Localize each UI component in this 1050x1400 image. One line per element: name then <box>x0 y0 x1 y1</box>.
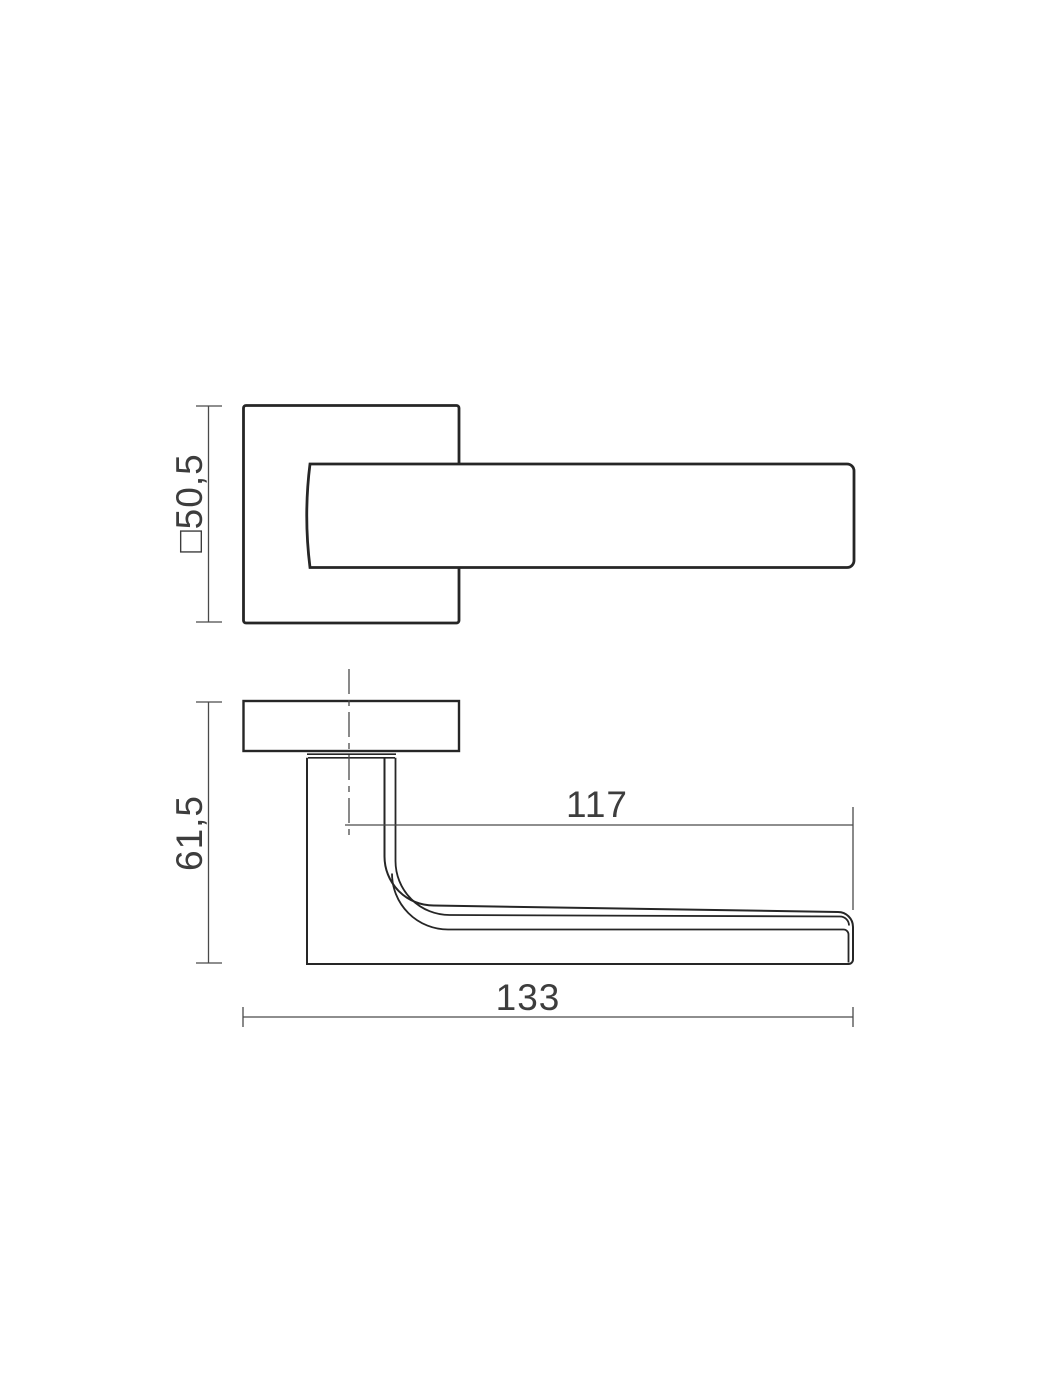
side-view <box>244 669 854 964</box>
top-view <box>244 406 855 624</box>
dim-label-total-length: 133 <box>496 977 561 1018</box>
side-view-grip-edge-line-2 <box>392 874 849 963</box>
side-view-neck-collar <box>307 754 396 758</box>
dim-label-height: 61,5 <box>169 795 210 871</box>
dim-label-rose-square: □50,5 <box>169 453 210 552</box>
drawing-page: □50,5 61,5 117 133 <box>0 0 1050 1400</box>
dim-label-grip-length: 117 <box>566 784 628 825</box>
technical-drawing-canvas: □50,5 61,5 117 133 <box>0 0 1050 1400</box>
top-view-lever <box>307 464 854 568</box>
side-view-rose <box>244 701 460 751</box>
side-view-grip-edge-line-1 <box>396 758 850 926</box>
